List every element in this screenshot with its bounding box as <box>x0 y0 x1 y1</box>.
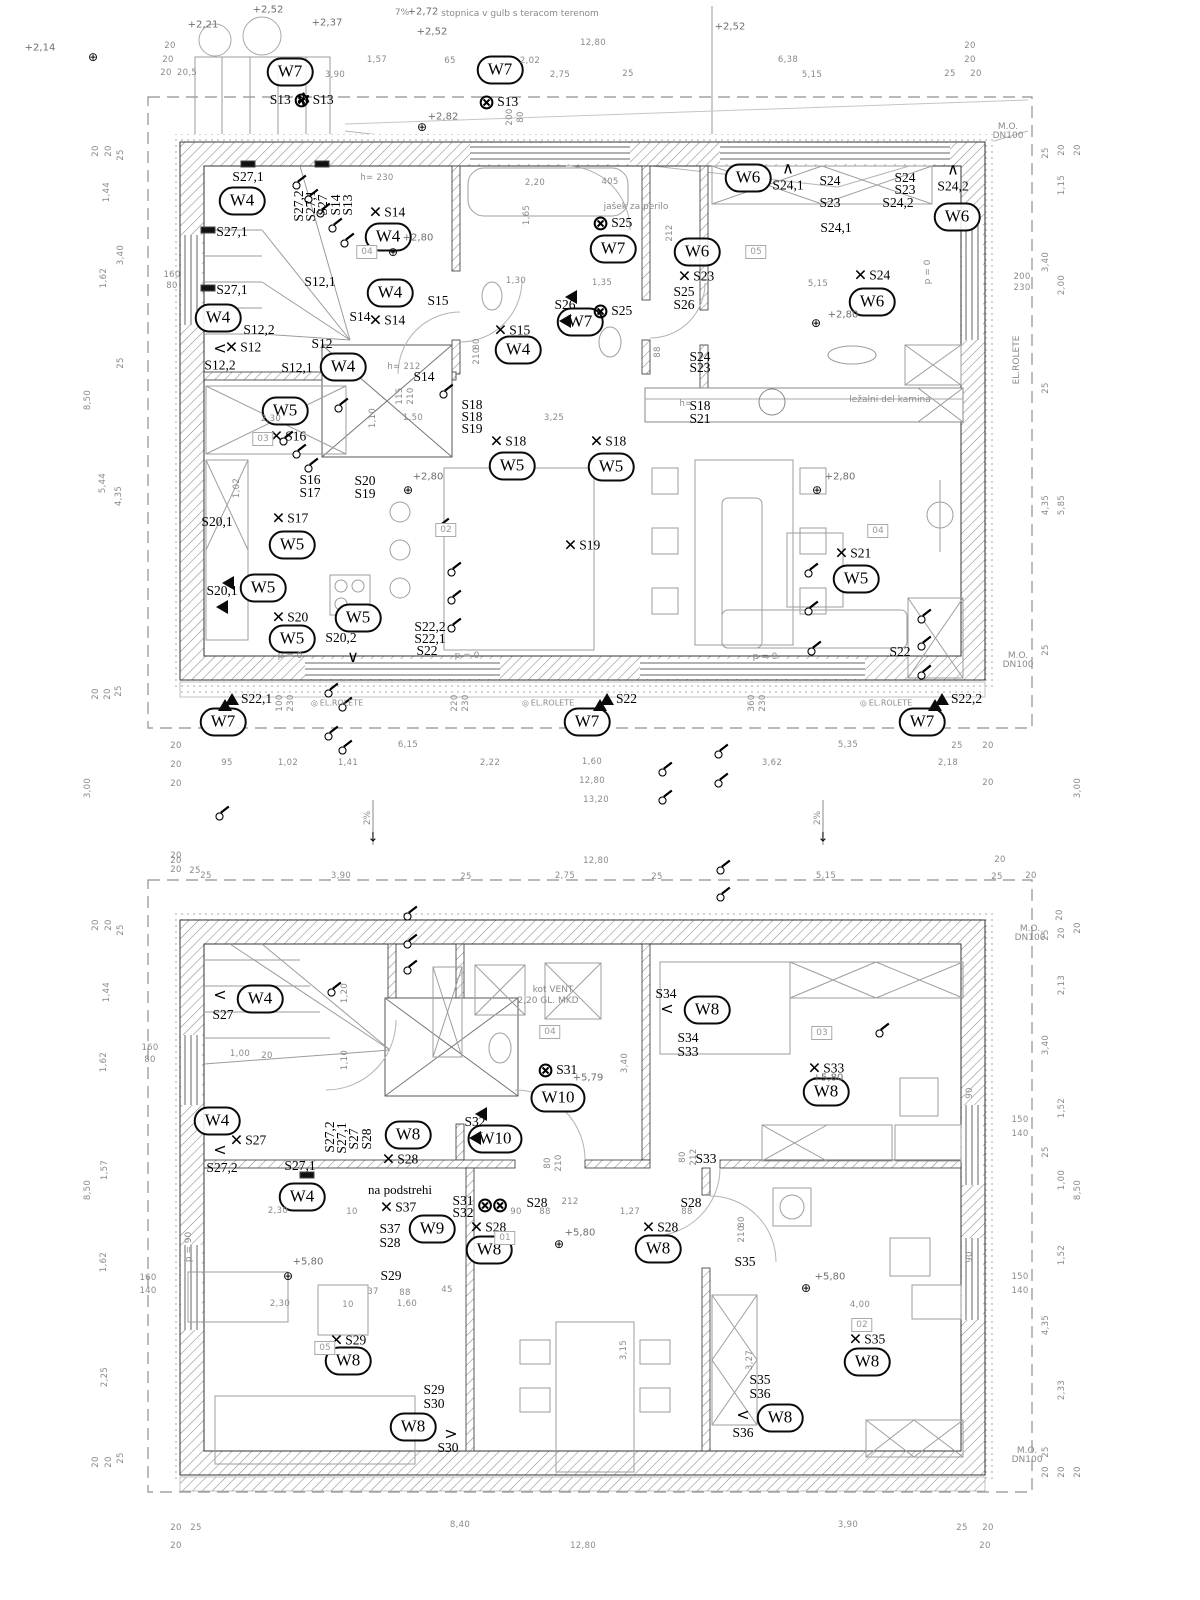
dimension-text: 210 <box>737 1225 747 1242</box>
dimension-text: 1,10 <box>368 408 378 428</box>
marker-label: S18 <box>505 433 526 449</box>
wall-light-marker-glyph: ⊗ <box>491 1193 509 1217</box>
dimension-text: 5,15 <box>816 871 836 881</box>
chevron-left-marker: < <box>736 1407 749 1423</box>
switch-symbol-glyph <box>659 762 674 777</box>
annotation-text: 7% <box>395 8 409 18</box>
ceiling-light-marker-glyph: ✕ <box>494 321 507 340</box>
level-target-icon-glyph: ⊕ <box>801 1281 811 1295</box>
annotation-text: stopnica v gulb s teracom terenom <box>441 9 599 19</box>
ceiling-light-marker-glyph: ✕ <box>590 432 603 451</box>
marker-label: S21 <box>850 545 871 561</box>
dimension-text: 220 <box>450 694 460 711</box>
marker-label: S24 <box>869 267 890 283</box>
level-mark: +5,80 <box>813 1073 844 1084</box>
circuit-label: W7 <box>200 708 247 737</box>
dimension-text: 4,00 <box>850 1300 870 1310</box>
chevron-left-marker-glyph: < <box>736 1407 749 1423</box>
dimension-text: 8,50 <box>83 390 93 410</box>
marker-label: S28 <box>657 1219 678 1235</box>
floor-plan-sheet: W7W7W7W7W7W7W7W4W4W4W4W4W4W5W5W5W5W5W5W5… <box>0 0 1200 1600</box>
wall-button-symbol-glyph <box>316 162 329 167</box>
marker-label: S14 <box>384 204 405 220</box>
ceiling-light-marker: ✕S37 <box>380 1198 416 1217</box>
switch-symbol <box>448 618 463 633</box>
switch-label: S15 <box>427 293 448 309</box>
switch-symbol <box>293 175 308 190</box>
dimension-text: 20 <box>982 741 993 751</box>
wall-light-marker: ⊗S31 <box>537 1058 578 1082</box>
dimension-text: 1,62 <box>99 268 109 288</box>
dimension-text: 20 <box>261 1051 272 1061</box>
switch-symbol <box>404 934 419 949</box>
switch-label: S27,1 <box>216 224 247 240</box>
chevron-up-marker-glyph: ∧ <box>782 161 794 177</box>
ceiling-light-marker: ✕S23 <box>678 267 714 286</box>
dimension-text: 88 <box>653 346 663 357</box>
dimension-text: 3,40 <box>1041 1035 1051 1055</box>
dimension-text: 140 <box>1011 1286 1028 1296</box>
circuit-label: W5 <box>240 574 287 603</box>
dimension-text: 4,35 <box>1041 495 1051 515</box>
switch-label: S23 <box>819 195 840 211</box>
switch-label: S22 <box>416 643 437 659</box>
dimension-text: 20 <box>970 69 981 79</box>
dimension-text: 20 <box>964 55 975 65</box>
switch-label: S19 <box>354 486 375 502</box>
switch-symbol-glyph <box>715 773 730 788</box>
ceiling-light-marker: ✕S28 <box>642 1218 678 1237</box>
dimension-text: 1,27 <box>620 1207 640 1217</box>
dimension-text: 2,00 <box>1057 275 1067 295</box>
dimension-text: 230 <box>758 694 768 711</box>
level-mark: +2,82 <box>428 112 459 123</box>
dimension-text: 1,50 <box>403 413 423 423</box>
ceiling-light-marker-glyph: ✕ <box>490 432 503 451</box>
marker-label: S27 <box>245 1132 266 1148</box>
slope-arrow-icon-glyph: ↓ <box>818 831 829 846</box>
dimension-text: 1,52 <box>1057 1098 1067 1118</box>
annotation-text: ležalni del kamina <box>849 395 931 405</box>
switch-label: S14 <box>349 309 370 325</box>
dimension-text: 90 <box>965 1251 975 1262</box>
dimension-text: 25 <box>116 1452 126 1463</box>
switch-symbol <box>918 665 933 680</box>
circuit-label: W4 <box>237 985 284 1014</box>
dimension-text: 8,40 <box>450 1520 470 1530</box>
pushbutton-up-marker: S22,2 <box>928 699 942 711</box>
level-target-icon: ⊕ <box>812 483 822 497</box>
switch-symbol <box>808 641 823 656</box>
dimension-text: 20 <box>91 145 101 156</box>
level-target-icon: ⊕ <box>554 1237 564 1251</box>
dimension-text: 360 <box>747 694 757 711</box>
dimension-text: 212 <box>689 1148 699 1165</box>
pushbutton-up-marker: S22 <box>593 699 607 711</box>
dimension-text: 2,30 <box>270 1299 290 1309</box>
switch-symbol <box>339 740 354 755</box>
annotation-text: 2,20 GL. MKD <box>517 996 578 1006</box>
marker-label: S37 <box>395 1199 416 1215</box>
level-mark: +2,72 <box>408 7 439 18</box>
dimension-text: 80 <box>516 111 526 122</box>
switch-label: S27,1 <box>216 282 247 298</box>
dimension-text: 45 <box>441 1285 452 1295</box>
ceiling-light-marker-glyph: ✕ <box>272 608 285 627</box>
dimension-text: 2,30 <box>268 1206 288 1216</box>
circuit-label: W6 <box>674 238 721 267</box>
dimension-text: h= <box>679 399 692 409</box>
dimension-text: 5,35 <box>838 740 858 750</box>
circuit-label: W8 <box>390 1413 437 1442</box>
dimension-text: 200 <box>1013 272 1030 282</box>
dimension-text: 20 <box>91 688 101 699</box>
chevron-left-marker: <S12,2 <box>204 341 235 374</box>
pushbutton-left-marker-glyph <box>559 314 571 328</box>
circuit-label: W5 <box>489 452 536 481</box>
switch-symbol <box>325 683 340 698</box>
switch-symbol-glyph <box>808 641 823 656</box>
switch-label: S36 <box>749 1386 770 1402</box>
dimension-text: 230 <box>286 694 296 711</box>
switch-symbol-glyph <box>918 636 933 651</box>
pushbutton-left-marker-glyph <box>469 1131 481 1145</box>
switch-symbol-glyph <box>341 233 356 248</box>
dimension-text: 1,44 <box>102 182 112 202</box>
pushbutton-left-marker: S20,1 <box>222 576 234 590</box>
level-mark: +2,52 <box>417 27 448 38</box>
circuit-label: W4 <box>495 336 542 365</box>
switch-symbol-glyph <box>325 683 340 698</box>
switch-label: S13 <box>340 194 356 215</box>
switch-symbol <box>448 590 463 605</box>
switch-symbol <box>717 860 732 875</box>
level-mark: +2,37 <box>312 18 343 29</box>
circuit-label: W8 <box>684 996 731 1025</box>
switch-symbol <box>293 444 308 459</box>
dimension-text: 20,5 <box>177 68 197 78</box>
annotation-text: p = 90 <box>184 1232 194 1262</box>
dimension-text: 25 <box>1041 382 1051 393</box>
dimension-text: 3,40 <box>1041 252 1051 272</box>
dimension-text: 3,40 <box>116 245 126 265</box>
level-mark: +2,80 <box>413 472 444 483</box>
dimension-text: 150 <box>1011 1272 1028 1282</box>
level-target-icon-glyph: ⊕ <box>403 483 413 497</box>
dimension-text: 20 <box>160 68 171 78</box>
annotation-text: p = 0 <box>753 652 778 662</box>
dimension-text: 200 <box>505 108 515 125</box>
circuit-label: W4 <box>367 279 414 308</box>
circuit-label: W8 <box>385 1121 432 1150</box>
dimension-text: 25 <box>116 357 126 368</box>
switch-symbol <box>717 887 732 902</box>
dimension-text: 5,15 <box>808 279 828 289</box>
level-target-icon-glyph: ⊕ <box>811 316 821 330</box>
switch-label: S27,1 <box>232 169 263 185</box>
chevron-left-marker-glyph: < <box>213 987 226 1003</box>
marker-label: S18 <box>605 433 626 449</box>
wall-button-symbol <box>202 228 215 233</box>
switch-symbol <box>404 960 419 975</box>
chandelier-marker: ✻S13 <box>296 90 333 110</box>
dimension-text: 25 <box>991 872 1002 882</box>
dimension-text: 25 <box>1041 644 1051 655</box>
dimension-text: 3,90 <box>325 70 345 80</box>
switch-symbol-glyph <box>216 806 231 821</box>
annotation-text: EL.ROLETE <box>1012 336 1022 385</box>
room-number: 03 <box>811 1026 832 1040</box>
dimension-text: 20 <box>170 856 181 866</box>
pushbutton-left-marker: S32 <box>475 1107 487 1121</box>
switch-symbol <box>341 233 356 248</box>
wall-light-marker-glyph: ⊗ <box>592 299 610 323</box>
marker-label: S14 <box>384 312 405 328</box>
switch-symbol <box>335 398 350 413</box>
circuit-label: W8 <box>635 1235 682 1264</box>
dimension-text: 1,62 <box>99 1052 109 1072</box>
dimension-text: 12,80 <box>580 38 606 48</box>
dimension-text: 20 <box>994 855 1005 865</box>
chevron-down-marker-glyph: ∨ <box>347 649 359 665</box>
dimension-text: 150 <box>1011 1115 1028 1125</box>
ceiling-light-marker-glyph: ✕ <box>272 509 285 528</box>
dimension-text: 25 <box>622 69 633 79</box>
ceiling-light-marker: ✕S28 <box>382 1150 418 1169</box>
level-target-icon-glyph: ⊕ <box>554 1237 564 1251</box>
ceiling-light-marker-glyph: ✕ <box>835 544 848 563</box>
dimension-text: 20 <box>162 55 173 65</box>
circuit-label: W7 <box>477 56 524 85</box>
dimension-text: 20 <box>1057 1466 1067 1477</box>
dimension-text: 1,00 <box>230 1049 250 1059</box>
dimension-text: 1,60 <box>397 1299 417 1309</box>
dimension-text: 210 <box>554 1154 564 1171</box>
dimension-text: 2,20 <box>525 178 545 188</box>
ceiling-light-marker: ✕S18 <box>590 432 626 451</box>
dimension-text: 230 <box>1013 283 1030 293</box>
pushbutton-up-marker-glyph <box>600 693 614 705</box>
ceiling-light-marker-glyph: ✕ <box>854 266 867 285</box>
switch-label: S36 <box>732 1425 753 1441</box>
circuit-label: W7 <box>899 708 946 737</box>
circuit-label: W10 <box>530 1084 585 1113</box>
room-number: 02 <box>435 523 456 537</box>
wall-button-symbol-glyph <box>242 162 255 167</box>
dimension-text: 6,15 <box>398 740 418 750</box>
switch-symbol-glyph <box>717 887 732 902</box>
annotation-text: p = 0 <box>455 651 480 661</box>
annotation-text: p = 0 <box>278 651 303 661</box>
switch-label: S30 <box>437 1440 458 1456</box>
switch-label: S28 <box>379 1235 400 1251</box>
dimension-text: 160 <box>163 270 180 280</box>
switch-label: S34 <box>655 986 676 1002</box>
switch-label: S24,1 <box>820 220 851 236</box>
switch-label: S27,2 <box>206 1160 237 1176</box>
switch-symbol-glyph <box>440 384 455 399</box>
switch-symbol-glyph <box>448 618 463 633</box>
switch-symbol-glyph <box>293 175 308 190</box>
switch-symbol <box>659 790 674 805</box>
chevron-down-marker: ∨ <box>347 649 359 665</box>
dimension-text: 80 <box>543 1157 553 1168</box>
dimension-text: 20 <box>170 779 181 789</box>
dimension-text: 25 <box>200 871 211 881</box>
wall-button-symbol <box>316 162 329 167</box>
level-mark: +2,52 <box>253 5 284 16</box>
marker-label: S25 <box>611 303 632 319</box>
switch-symbol <box>918 636 933 651</box>
level-mark: +2,52 <box>715 22 746 33</box>
dimension-text: 25 <box>1041 929 1051 940</box>
wall-light-marker: ⊗S25 <box>592 299 633 323</box>
dimension-text: 20 <box>91 919 101 930</box>
dimension-text: 20 <box>1057 144 1067 155</box>
switch-label: S12,1 <box>304 274 335 290</box>
wall-light-marker-glyph: ⊗ <box>478 90 496 114</box>
switch-symbol-glyph <box>325 726 340 741</box>
marker-label: S13 <box>270 92 291 108</box>
wall-button-symbol-glyph <box>202 228 215 233</box>
room-number: 04 <box>539 1025 560 1039</box>
dimension-text: 25 <box>116 149 126 160</box>
dimension-text: 88 <box>681 1207 692 1217</box>
dimension-text: 2,25 <box>100 1367 110 1387</box>
level-target-icon-glyph: ⊕ <box>283 1269 293 1283</box>
dimension-text: 1,15 <box>1057 175 1067 195</box>
wall-button-symbol <box>242 162 255 167</box>
dimension-text: 20 <box>104 145 114 156</box>
dimension-text: 1,02 <box>278 758 298 768</box>
dimension-text: 20 <box>104 919 114 930</box>
dimension-text: 20 <box>979 1541 990 1551</box>
annotation-text: na podstrehi <box>368 1182 432 1198</box>
chevron-left-marker-glyph: < <box>213 341 226 357</box>
switch-label: S28 <box>359 1128 375 1149</box>
dimension-text: 5,44 <box>98 473 108 493</box>
annotation-text: DN100 <box>1003 660 1034 670</box>
switch-symbol <box>216 806 231 821</box>
roller-shutter-label: EL.ROLETE <box>311 699 363 708</box>
ceiling-light-marker: ✕S27 <box>230 1131 266 1150</box>
switch-label: S12,1 <box>281 360 312 376</box>
dimension-text: 212 <box>561 1197 578 1207</box>
dimension-text: 20 <box>170 760 181 770</box>
marker-label: S12,2 <box>204 358 235 374</box>
dimension-text: 12,80 <box>583 856 609 866</box>
marker-label: S20,1 <box>206 583 237 599</box>
marker-label: S20 <box>287 609 308 625</box>
dimension-text: 115 <box>395 387 405 404</box>
marker-label: S24,1 <box>772 178 803 194</box>
marker-label: S28 <box>397 1151 418 1167</box>
ceiling-light-marker-glyph: ✕ <box>564 536 577 555</box>
switch-label: S20,2 <box>325 630 356 646</box>
switch-label: S35 <box>734 1254 755 1270</box>
annotation-text: jašek za perilo <box>604 202 669 212</box>
switch-label: S12 <box>311 336 332 352</box>
dimension-text: 20 <box>164 41 175 51</box>
dimension-text: 1,20 <box>340 983 350 1003</box>
marker-label: S13 <box>313 92 334 108</box>
circuit-label: W5 <box>335 604 382 633</box>
dimension-text: 3,00 <box>83 778 93 798</box>
ceiling-light-marker-glyph: ✕ <box>642 1218 655 1237</box>
level-mark: +2,80 <box>403 233 434 244</box>
switch-symbol <box>715 773 730 788</box>
level-target-icon: ⊕ <box>283 1269 293 1283</box>
dimension-text: 5,15 <box>802 70 822 80</box>
circuit-label: W4 <box>219 187 266 216</box>
circuit-label: W5 <box>833 565 880 594</box>
dimension-text: 140 <box>139 1286 156 1296</box>
dimension-text: 20 <box>170 1541 181 1551</box>
level-mark: +5,80 <box>293 1257 324 1268</box>
dimension-text: 12,80 <box>570 1541 596 1551</box>
roller-shutter-label: EL.ROLETE <box>860 699 912 708</box>
dimension-text: 1,10 <box>340 1050 350 1070</box>
ceiling-light-marker: ✕S21 <box>835 544 871 563</box>
dimension-text: 25 <box>190 1523 201 1533</box>
ceiling-light-marker-glyph: ✕ <box>678 267 691 286</box>
dimension-text: 20 <box>1041 1466 1051 1477</box>
dimension-text: 25 <box>189 866 200 876</box>
dimension-text: 20 <box>1073 922 1083 933</box>
level-mark: +5,80 <box>815 1272 846 1283</box>
ceiling-light-marker: ✕S15 <box>494 321 530 340</box>
ceiling-light-marker: ✕S18 <box>490 432 526 451</box>
switch-label: S21 <box>689 411 710 427</box>
chevron-up-marker: ∧S24,1 <box>772 161 803 194</box>
dimension-text: 88 <box>399 1288 410 1298</box>
dimension-text: 2,33 <box>1057 1380 1067 1400</box>
dimension-text: 1,41 <box>338 758 358 768</box>
ceiling-light-marker: ✕S17 <box>272 509 308 528</box>
room-number: 04 <box>867 524 888 538</box>
room-number: 04 <box>356 245 377 259</box>
dimension-text: h= 230 <box>360 173 393 183</box>
dimension-text: 3,90 <box>838 1520 858 1530</box>
chevron-left-marker: < <box>213 1142 226 1158</box>
switch-symbol <box>440 384 455 399</box>
dimension-text: 80 <box>678 1151 688 1162</box>
slope-arrow-icon: ↓ <box>368 831 379 846</box>
dimension-text: 5,85 <box>1057 495 1067 515</box>
chevron-left-marker: < <box>660 1001 673 1017</box>
ceiling-light-marker-glyph: ✕ <box>382 1150 395 1169</box>
slope-arrow-icon: ↓ <box>818 831 829 846</box>
dimension-text: 160 <box>141 1043 158 1053</box>
dimension-text: 3,62 <box>762 758 782 768</box>
switch-symbol <box>715 744 730 759</box>
switch-label: S20,1 <box>201 514 232 530</box>
ceiling-light-marker-glyph: ✕ <box>369 311 382 330</box>
switch-symbol-glyph <box>715 744 730 759</box>
dimension-text: 90 <box>510 1207 521 1217</box>
switch-symbol <box>329 218 344 233</box>
dimension-text: 1,52 <box>1057 1245 1067 1265</box>
dimension-text: 210 <box>472 347 482 364</box>
switch-symbol <box>404 906 419 921</box>
room-number: 05 <box>745 245 766 259</box>
switch-label: S27 <box>212 1007 233 1023</box>
switch-symbol-glyph <box>805 563 820 578</box>
chevron-up-marker-glyph: ∧ <box>947 162 959 178</box>
dimension-text: 90 <box>965 1087 975 1098</box>
dimension-text: 4,35 <box>114 486 124 506</box>
wall-button-symbol-glyph <box>301 1173 314 1178</box>
